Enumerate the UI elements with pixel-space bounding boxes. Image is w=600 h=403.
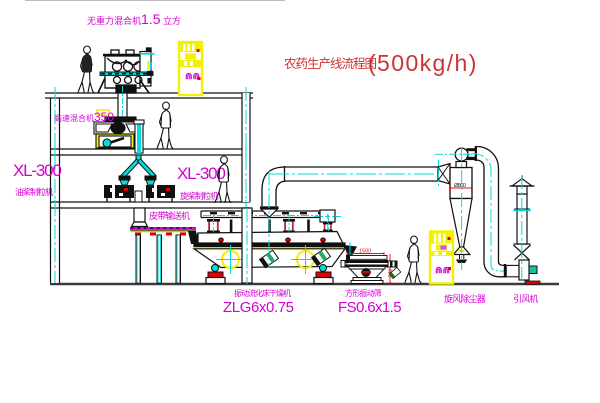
svg-text:引风机: 引风机 — [513, 293, 538, 304]
svg-text:皮带输送机: 皮带输送机 — [149, 210, 190, 221]
svg-text:1500: 1500 — [359, 249, 371, 255]
svg-text:(500kg/h): (500kg/h) — [368, 50, 478, 76]
svg-text:FS0.6x1.5: FS0.6x1.5 — [338, 299, 401, 316]
svg-text:振动流化床干燥机: 振动流化床干燥机 — [234, 288, 291, 298]
svg-text:高速混合机350: 高速混合机350 — [54, 110, 114, 124]
svg-text:旋桨制粒机: 旋桨制粒机 — [180, 191, 219, 201]
svg-text:旋风除尘器: 旋风除尘器 — [444, 293, 486, 304]
svg-text:XL-300: XL-300 — [13, 161, 61, 180]
svg-text:无重力混合机1.5 立方: 无重力混合机1.5 立方 — [87, 11, 181, 27]
svg-text:ZLG6x0.75: ZLG6x0.75 — [223, 299, 294, 316]
svg-text:农药生产线流程图: 农药生产线流程图 — [284, 56, 377, 71]
svg-text:油桨制粒机: 油桨制粒机 — [15, 187, 54, 197]
svg-text:⋒⋒: ⋒⋒ — [435, 265, 450, 275]
svg-text:方形振动筛: 方形振动筛 — [345, 288, 382, 298]
